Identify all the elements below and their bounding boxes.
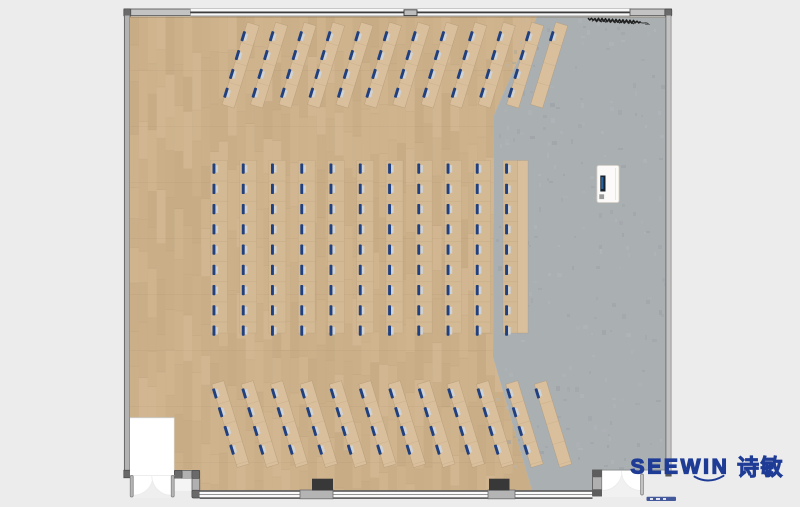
svg-text:诗敏: 诗敏	[737, 455, 784, 480]
svg-text:SEEWIN: SEEWIN	[631, 456, 730, 479]
